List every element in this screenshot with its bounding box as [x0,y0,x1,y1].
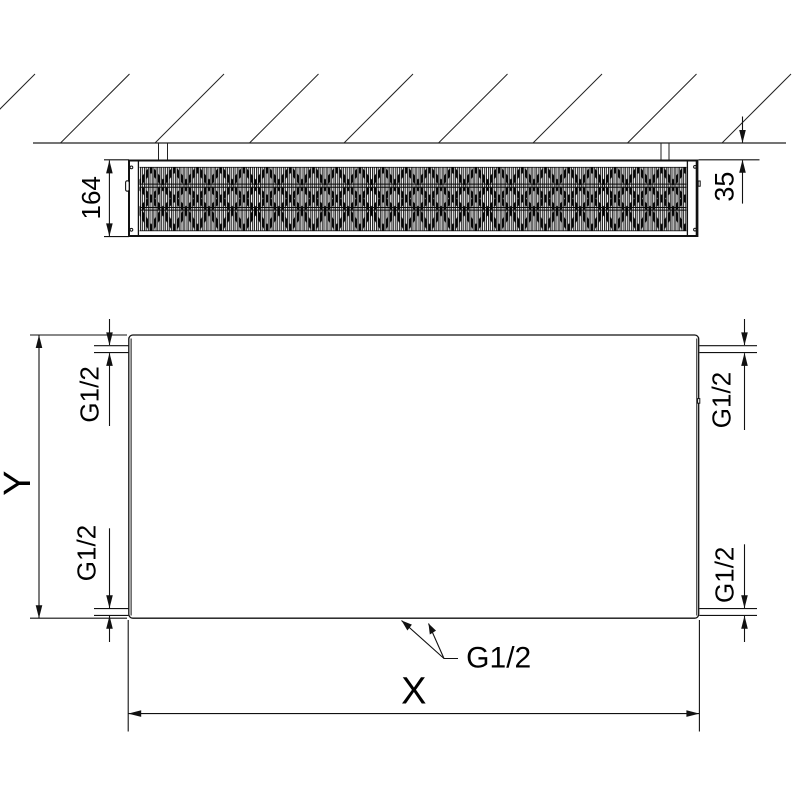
svg-text:G1/2: G1/2 [707,372,737,428]
svg-text:Y: Y [0,471,39,496]
svg-text:X: X [401,670,426,712]
svg-text:G1/2: G1/2 [72,525,102,581]
svg-text:G1/2: G1/2 [74,366,104,422]
svg-text:164: 164 [76,176,106,219]
svg-text:G1/2: G1/2 [466,642,531,675]
svg-text:35: 35 [710,172,740,202]
svg-text:G1/2: G1/2 [709,547,739,603]
